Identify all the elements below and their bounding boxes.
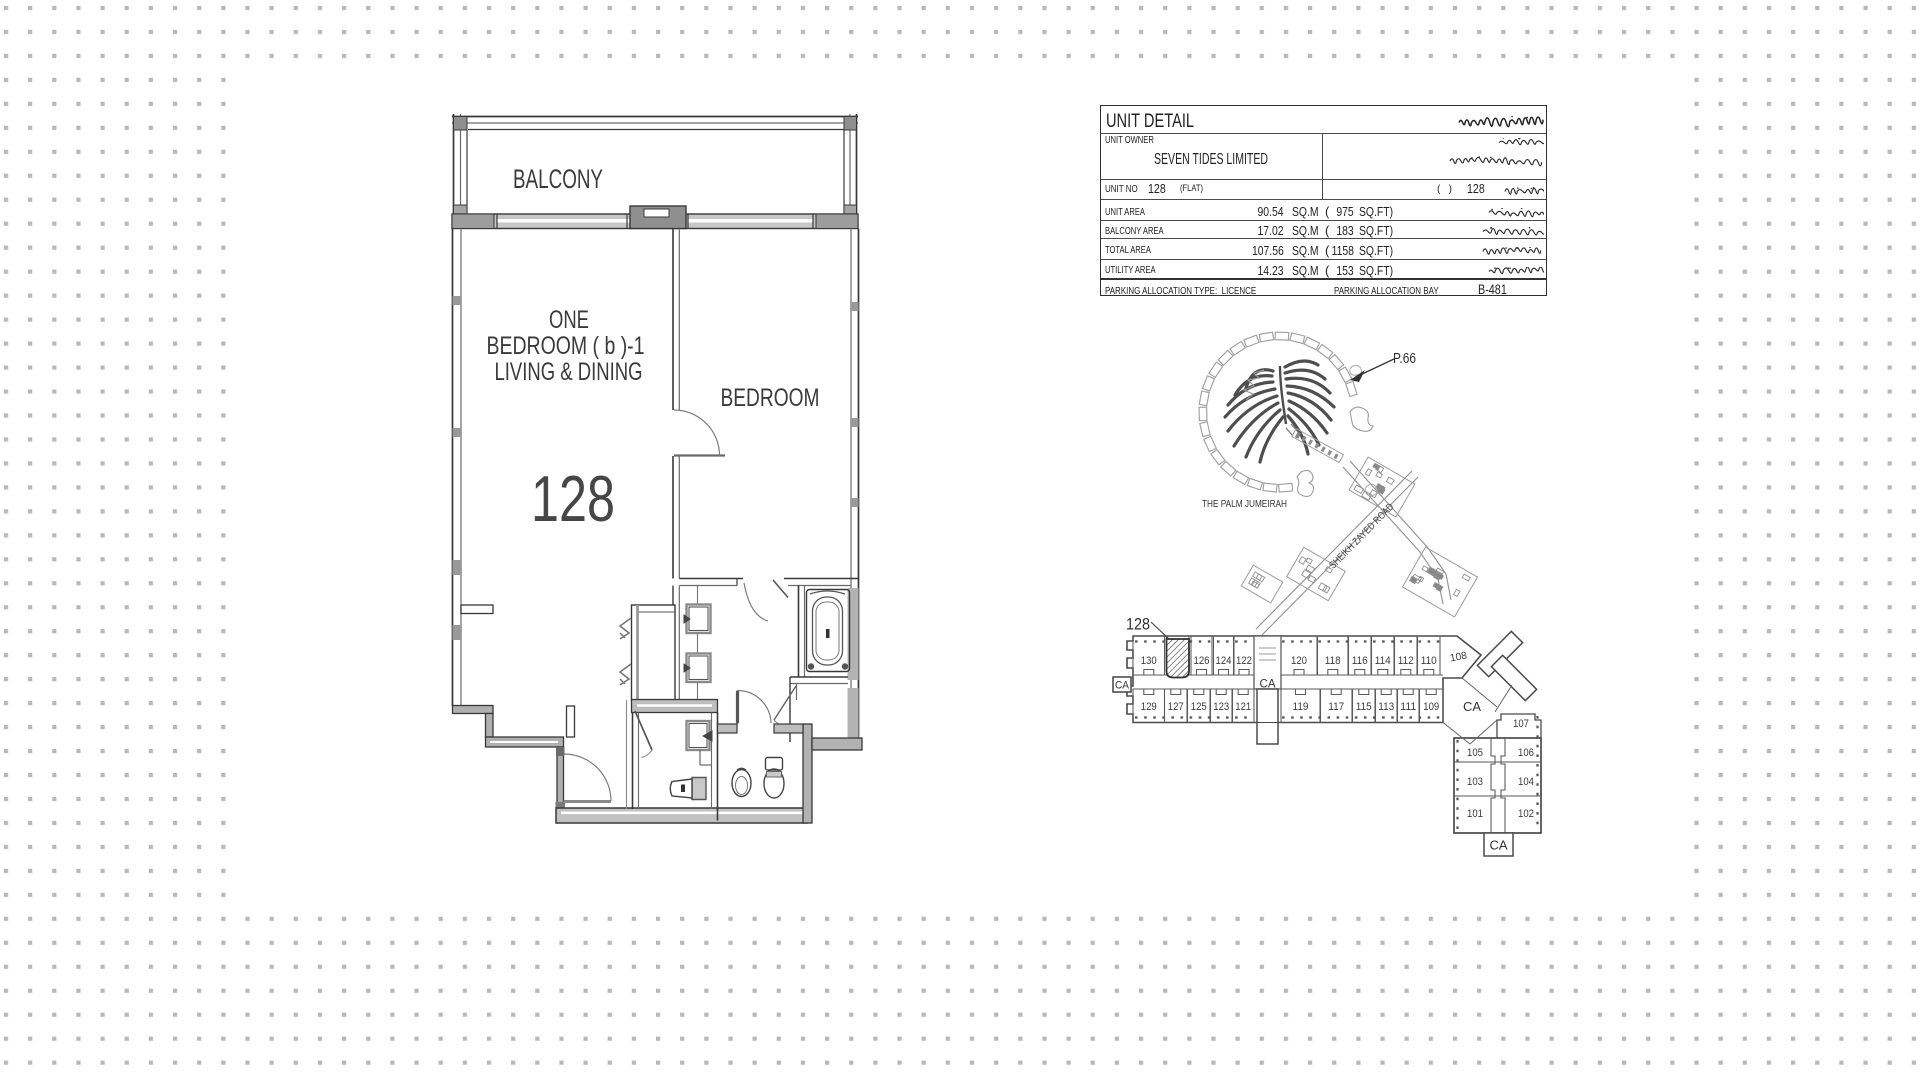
svg-text:127: 127 (1168, 701, 1184, 713)
svg-text:CA: CA (1490, 838, 1508, 853)
svg-text:CA: CA (1463, 699, 1481, 714)
svg-text:119: 119 (1293, 701, 1309, 713)
svg-text:126: 126 (1194, 655, 1210, 667)
svg-text:122: 122 (1236, 655, 1252, 667)
svg-text:CA: CA (1115, 680, 1130, 692)
svg-text:101: 101 (1467, 808, 1483, 820)
svg-text:112: 112 (1398, 655, 1414, 667)
svg-text:109: 109 (1423, 701, 1439, 713)
svg-text:107: 107 (1513, 718, 1529, 730)
svg-text:129: 129 (1141, 701, 1157, 713)
svg-text:110: 110 (1421, 655, 1437, 667)
svg-text:130: 130 (1141, 655, 1157, 667)
svg-text:103: 103 (1467, 776, 1483, 788)
svg-text:117: 117 (1328, 701, 1344, 713)
svg-text:102: 102 (1518, 808, 1534, 820)
svg-text:111: 111 (1400, 701, 1416, 713)
svg-text:118: 118 (1325, 655, 1341, 667)
svg-text:120: 120 (1291, 655, 1307, 667)
svg-text:105: 105 (1467, 747, 1483, 759)
svg-text:124: 124 (1216, 655, 1232, 667)
svg-text:125: 125 (1191, 701, 1207, 713)
svg-text:115: 115 (1356, 701, 1372, 713)
svg-text:106: 106 (1518, 747, 1534, 759)
svg-text:123: 123 (1213, 701, 1229, 713)
svg-text:128: 128 (1126, 615, 1150, 634)
svg-text:CA: CA (1260, 677, 1276, 691)
svg-text:104: 104 (1518, 776, 1534, 788)
svg-text:114: 114 (1375, 655, 1391, 667)
svg-text:121: 121 (1235, 701, 1251, 713)
svg-text:116: 116 (1352, 655, 1368, 667)
svg-text:113: 113 (1378, 701, 1394, 713)
